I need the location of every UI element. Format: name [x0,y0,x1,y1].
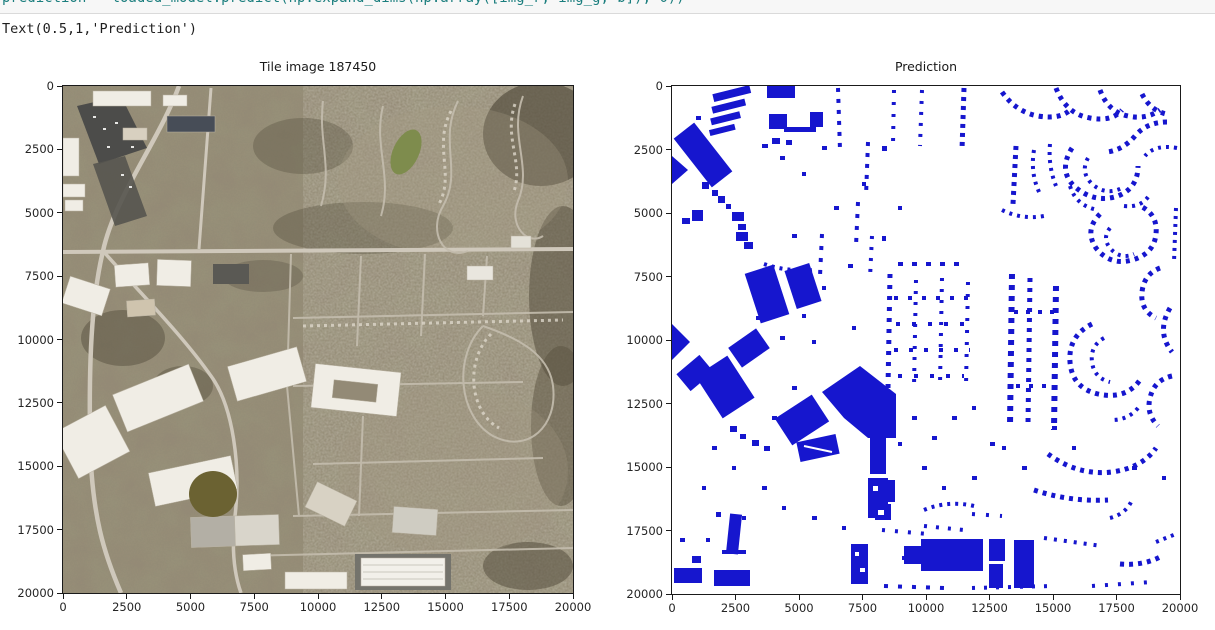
x-tick-label: 10000 [300,600,337,614]
y-tick-mark [666,403,671,404]
y-tick-label: 17500 [626,524,663,538]
y-tick-mark [57,339,62,340]
x-tick-label: 10000 [908,601,945,615]
y-tick-mark [666,276,671,277]
y-tick-label: 5000 [634,206,663,220]
tile-image-plot: Tile image 187450 [62,85,574,594]
y-tick-mark [666,530,671,531]
x-tick-mark [862,595,863,600]
plot-title: Tile image 187450 [62,59,574,74]
y-tick-mark [57,149,62,150]
y-tick-mark [57,212,62,213]
prediction-plot: Prediction [671,85,1181,595]
prediction-axes: 0025002500500050007500750010000100001250… [671,85,1181,595]
y-tick-label: 7500 [25,269,54,283]
y-tick-mark [666,213,671,214]
x-tick-label: 12500 [363,600,400,614]
x-tick-mark [735,595,736,600]
y-tick-mark [57,466,62,467]
x-tick-mark [63,594,64,599]
plot-title: Prediction [671,59,1181,74]
y-tick-mark [57,86,62,87]
x-tick-mark [445,594,446,599]
x-tick-label: 0 [59,600,66,614]
x-tick-mark [1116,595,1117,600]
y-tick-label: 2500 [634,143,663,157]
prediction-mask-image [672,86,1180,594]
x-tick-mark [254,594,255,599]
x-tick-mark [573,594,574,599]
y-tick-mark [666,467,671,468]
y-tick-label: 15000 [17,459,54,473]
x-tick-label: 20000 [555,600,592,614]
x-tick-label: 0 [668,601,675,615]
y-tick-label: 2500 [25,142,54,156]
y-tick-label: 12500 [626,397,663,411]
x-tick-mark [989,595,990,600]
x-tick-label: 17500 [1098,601,1135,615]
x-tick-mark [672,595,673,600]
x-tick-mark [381,594,382,599]
x-tick-label: 2500 [112,600,141,614]
x-tick-label: 20000 [1162,601,1199,615]
y-tick-label: 10000 [626,333,663,347]
x-tick-label: 15000 [427,600,464,614]
x-tick-label: 7500 [240,600,269,614]
x-tick-label: 17500 [491,600,528,614]
x-tick-mark [509,594,510,599]
y-tick-mark [666,86,671,87]
x-tick-mark [190,594,191,599]
x-tick-mark [318,594,319,599]
y-tick-mark [666,594,671,595]
y-tick-label: 15000 [626,460,663,474]
x-tick-mark [1053,595,1054,600]
x-tick-label: 7500 [848,601,877,615]
y-tick-mark [57,529,62,530]
x-tick-mark [926,595,927,600]
y-tick-mark [57,276,62,277]
x-tick-label: 15000 [1035,601,1072,615]
y-tick-label: 10000 [17,333,54,347]
x-tick-label: 12500 [971,601,1008,615]
code-cell-source: prediction = loaded_model.predict(np.exp… [2,0,1215,6]
y-tick-label: 20000 [17,586,54,600]
x-tick-mark [1180,595,1181,600]
x-tick-label: 5000 [176,600,205,614]
y-tick-label: 12500 [17,396,54,410]
x-tick-label: 5000 [784,601,813,615]
tile-image-axes: 0025002500500050007500750010000100001250… [62,85,574,594]
x-tick-mark [799,595,800,600]
y-tick-mark [666,149,671,150]
y-tick-label: 7500 [634,270,663,284]
y-tick-label: 20000 [626,587,663,601]
x-tick-mark [126,594,127,599]
code-cell-clipped[interactable]: prediction = loaded_model.predict(np.exp… [0,0,1215,14]
y-tick-label: 17500 [17,523,54,537]
y-tick-label: 5000 [25,206,54,220]
x-tick-label: 2500 [721,601,750,615]
cell-output-text: Text(0.5,1,'Prediction') [2,20,197,38]
y-tick-mark [57,402,62,403]
y-tick-mark [57,593,62,594]
y-tick-label: 0 [656,79,663,93]
notebook-screenshot: prediction = loaded_model.predict(np.exp… [0,0,1215,630]
y-tick-mark [666,340,671,341]
satellite-image [63,86,573,593]
y-tick-label: 0 [47,79,54,93]
